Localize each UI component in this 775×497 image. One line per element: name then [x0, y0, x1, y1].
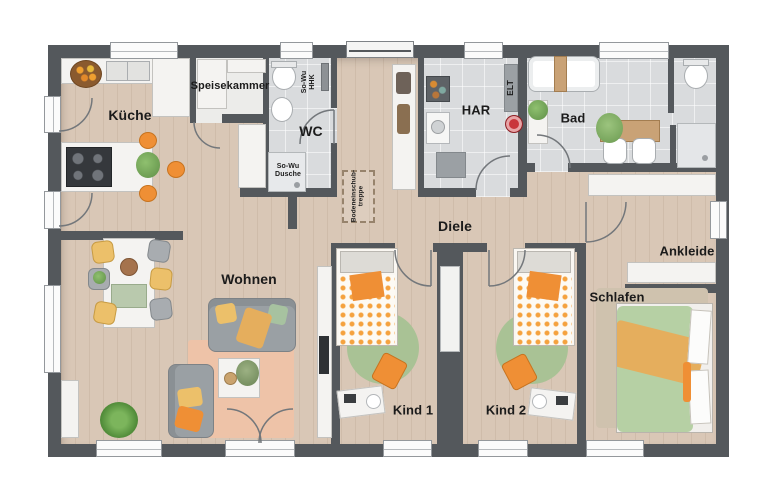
pantry-shelf-top	[227, 59, 266, 73]
window-kueche-top	[110, 42, 178, 59]
double-bed	[616, 303, 713, 433]
fruit-basket	[70, 60, 102, 88]
toilet-cistern	[271, 61, 297, 68]
room-label-kind2: Kind 2	[486, 404, 526, 419]
annotation-towel-radiator: So-Wu HHK	[301, 71, 317, 94]
room-label-kind1: Kind 1	[393, 404, 433, 419]
wall-har-left	[418, 58, 424, 197]
island-plant	[136, 152, 160, 178]
har-cabinet	[436, 152, 466, 178]
terrace-door-kueche	[44, 96, 61, 133]
entrance-door	[346, 41, 414, 58]
wall-bad-toilet-nook	[668, 58, 674, 113]
wall-wc-right-upper	[331, 58, 337, 108]
room-label-wc: WC	[299, 124, 323, 140]
bath-caddy	[554, 56, 567, 92]
window-ankleide-right	[710, 201, 727, 239]
wall-har-bottom-left	[418, 188, 476, 197]
window-wohnen-bottom	[96, 440, 162, 457]
room-label-bad: Bad	[561, 112, 586, 127]
wall-schlafen-left	[577, 243, 586, 444]
shower-bad	[677, 123, 716, 168]
kind2-laptop	[556, 396, 568, 405]
palm-plant	[100, 402, 138, 438]
window-wohnen-left	[44, 285, 61, 373]
floor-plan: Küche Speisekammer WC HAR Bad Diele Wohn…	[0, 0, 775, 497]
table-bowl	[120, 258, 138, 276]
kind1-bed	[336, 248, 398, 346]
table-runner	[111, 284, 147, 308]
room-label-har: HAR	[462, 104, 490, 119]
bed-accent-orange	[683, 362, 691, 402]
kind2-pillow	[517, 251, 571, 273]
window-kind1-bottom	[383, 440, 432, 457]
terrace-door-essplatz	[44, 191, 61, 229]
shower-bad-drain	[702, 155, 708, 161]
tv	[319, 336, 329, 374]
chair-gray	[149, 297, 174, 322]
window-har-top	[464, 42, 503, 59]
ankleide-wardrobe	[627, 262, 716, 283]
bath-plant-small	[528, 100, 548, 120]
toilet-bad	[684, 63, 708, 89]
hall-deco	[396, 72, 411, 94]
window-kind2-bottom	[478, 440, 528, 457]
kitchen-sink-divider	[127, 61, 128, 81]
wall-wc-stub	[288, 197, 297, 229]
annotation-shower-special: So-Wu Dusche	[275, 163, 301, 179]
hall-deco	[397, 104, 410, 134]
kind2-blanket-fold	[526, 271, 561, 301]
washer-drum	[431, 120, 445, 134]
bar-stool	[167, 161, 185, 178]
annotation-electrical: ELT	[506, 80, 516, 96]
sofa-cushion-yellow	[215, 302, 238, 324]
wall-exterior-right	[716, 45, 729, 457]
wall-wc-right-lower	[331, 143, 337, 197]
vanity-sink	[632, 138, 656, 164]
room-label-wohnen: Wohnen	[221, 272, 277, 288]
kitchen-corner-counter	[152, 58, 190, 117]
toilet-bad-cistern	[683, 59, 709, 66]
towel-radiator	[321, 63, 329, 91]
window-schlafen-bottom	[586, 440, 644, 457]
kind1-blanket-fold	[349, 271, 384, 301]
robot-vacuum	[505, 115, 523, 133]
kind1-laptop	[344, 394, 356, 403]
window-bad-top	[599, 42, 669, 59]
kind1-pillow	[340, 251, 394, 273]
chair-yellow	[92, 300, 117, 325]
laundry-basket	[426, 76, 450, 102]
window-wc-top	[280, 42, 313, 59]
ankleide-cabinet-top	[588, 174, 716, 196]
shower-drain-icon	[294, 182, 300, 188]
wohnen-shelf	[61, 380, 79, 438]
french-door-wohnen	[225, 440, 295, 457]
coffee-table-bowl	[224, 372, 237, 385]
bar-stool	[139, 132, 157, 149]
chair-yellow	[91, 240, 116, 265]
room-label-ankleide: Ankleide	[660, 245, 715, 260]
chair-yellow	[149, 267, 173, 291]
coffee-table-plant	[236, 360, 259, 386]
kind2-bed	[513, 248, 575, 346]
kitchen-sink	[106, 61, 150, 81]
bath-plant-large	[596, 113, 623, 143]
fridge-cabinet	[238, 124, 266, 188]
kind2-chair	[532, 394, 547, 409]
room-label-speisekammer: Speisekammer	[191, 80, 270, 92]
chair-gray	[146, 238, 171, 263]
cooktop	[66, 147, 112, 187]
bar-stool	[139, 185, 157, 202]
bed-pillow	[688, 369, 712, 424]
room-label-schlafen: Schlafen	[590, 291, 645, 306]
wall-bad-shower	[670, 125, 676, 172]
bed-pillow	[687, 309, 712, 364]
wall-pantry-bottom	[222, 114, 267, 123]
room-label-diele: Diele	[438, 219, 472, 235]
niche-kind-wall	[440, 266, 460, 352]
wall-bad-bottom-left	[527, 163, 535, 172]
annotation-attic-stairs: Bodeneinschub- treppe	[351, 170, 366, 222]
chair-plant	[93, 271, 106, 284]
wall-har-bottom-right	[510, 188, 518, 197]
wc-sink	[271, 97, 293, 122]
kind1-chair	[366, 394, 381, 409]
room-label-kueche: Küche	[108, 108, 151, 124]
